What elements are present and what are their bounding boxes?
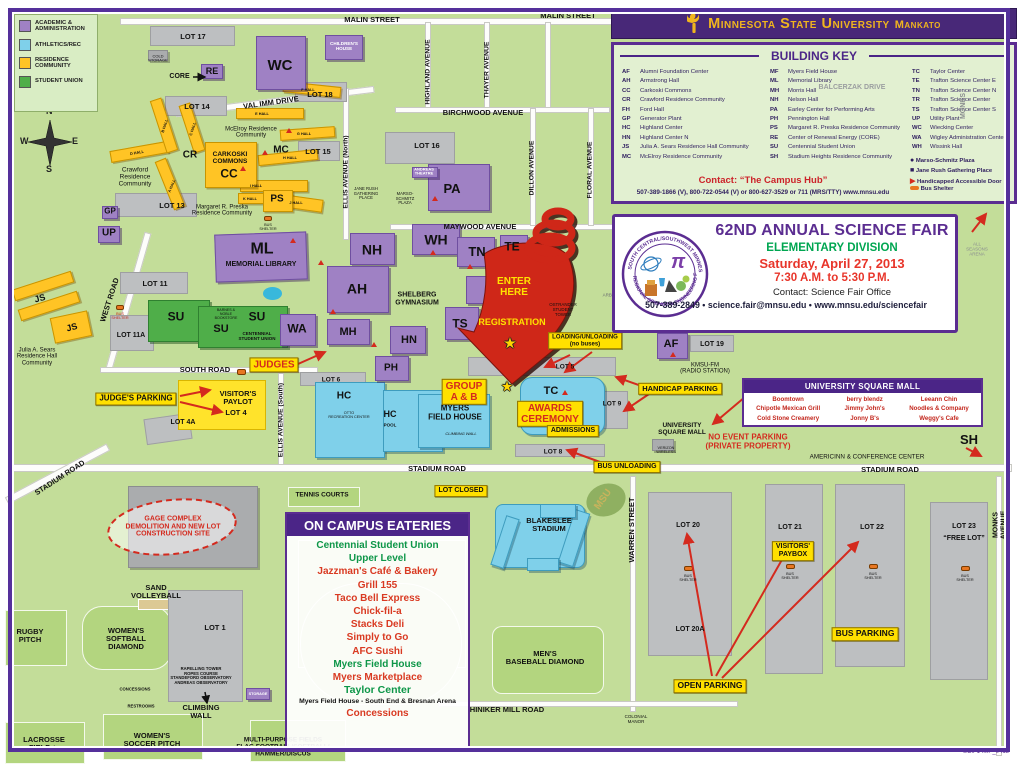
- building-key-entry: HCHighland Center: [622, 125, 683, 131]
- bus-parking-callout: BUS PARKING: [832, 627, 899, 641]
- area-label: BUS SHELTER: [864, 572, 881, 580]
- bus-shelter-icon: [869, 564, 878, 569]
- open-parking-callout: OPEN PARKING: [673, 679, 746, 693]
- building-key-entry: TETrafton Science Center E: [912, 78, 996, 84]
- building-key-entry: GPGenerator Plant: [622, 116, 682, 122]
- building-label: MC: [273, 146, 289, 157]
- judges-callout: JUDGES: [249, 357, 298, 372]
- eatery-item: Myers Field House - South End & Bresnan …: [287, 698, 468, 707]
- eatery-item: AFC Sushi: [287, 645, 468, 658]
- building-key-entry: NHNelson Hall: [770, 97, 818, 103]
- building-label: I HALL: [250, 184, 262, 188]
- building-label: SU: [168, 311, 185, 324]
- enter-here-label: ENTER HERE: [494, 275, 534, 299]
- eatery-item: Centennial Student Union: [287, 539, 468, 552]
- building-label: AF: [664, 339, 679, 351]
- area-label: SAND VOLLEYBALL: [131, 584, 181, 600]
- building-key-entry: TRTrafton Science Center: [912, 97, 990, 103]
- area-label: STORAGE: [249, 692, 268, 696]
- building-label: F HALL: [301, 88, 315, 92]
- bus-shelter-icon: [237, 369, 246, 375]
- building-label: ANDREAS THEATRE: [414, 168, 434, 177]
- building-label: MYERS FIELD HOUSE: [428, 404, 482, 421]
- area-label: MEN'S BASEBALL DIAMOND: [506, 650, 585, 666]
- building-label: Crawford Residence Community: [119, 166, 152, 187]
- area-label: BUS SHELTER: [781, 572, 798, 580]
- legend-label: ATHLETICS/REC: [35, 42, 81, 48]
- street-label: WARREN STREET: [628, 497, 636, 562]
- compass-s: S: [46, 164, 52, 174]
- bus-shelter-icon: [264, 216, 272, 221]
- building-label: SU: [249, 311, 266, 324]
- street-label: DILLON AVENUE: [528, 141, 535, 196]
- accessible-door-icon: [290, 238, 296, 243]
- building-label: OTTO RECREATION CENTER: [328, 411, 369, 419]
- building-key-entry: JSJulia A. Sears Residence Hall Communit…: [622, 144, 749, 150]
- street-label: STADIUM ROAD: [861, 466, 919, 474]
- eatery-item: Stacks Deli: [287, 618, 468, 631]
- registration-star: ★: [501, 336, 519, 353]
- lot-label: LOT 1: [204, 624, 225, 632]
- building-label: J HALL: [289, 201, 302, 205]
- judges-parking-callout: JUDGE'S PARKING: [95, 393, 176, 406]
- legend-label: ACADEMIC & ADMINISTRATION: [35, 20, 85, 33]
- mall-restaurant: Jonny B's: [844, 414, 884, 423]
- building-label: CORE →: [169, 73, 198, 81]
- accessible-door-icon: [330, 309, 336, 314]
- lot-label: LOT 15: [305, 148, 330, 156]
- building-label: WH: [424, 232, 447, 247]
- street-label: ELLIS AVENUE (North): [342, 135, 349, 208]
- university-name: Minnesota State University: [708, 16, 890, 32]
- building-label: ML: [250, 240, 273, 257]
- lot-label: “FREE LOT”: [943, 535, 985, 543]
- mall-column: berry blendzJimmy John'sJonny B's: [844, 395, 884, 423]
- area-label: LOT 4: [225, 409, 246, 417]
- building-key: BUILDING KEY Contact: “The Campus Hub” 5…: [611, 42, 1017, 204]
- building-label: CLIMBING WALL: [445, 432, 476, 436]
- building-label: CARKOSKI COMMONS: [213, 151, 248, 165]
- building-label: McElroy Residence Community: [225, 127, 277, 140]
- building-key-entry: HNHighland Center N: [622, 135, 688, 141]
- athletics-building: [527, 558, 559, 571]
- building-label: NH: [362, 242, 382, 257]
- street-label: AMERICINN & CONFERENCE CENTER: [810, 455, 925, 462]
- street-label: ELLIS AVENUE (South): [277, 383, 284, 457]
- eatery-item: Concessions: [287, 707, 468, 720]
- key-symbol-red-arrow: ▶ Handicapped Accessible Door: [910, 177, 1002, 185]
- legend-item: ACADEMIC & ADMINISTRATION: [19, 20, 93, 33]
- street-label: STADIUM ROAD: [408, 465, 466, 473]
- area-label: WOMEN'S SOFTBALL DIAMOND: [106, 627, 146, 651]
- eatery-item: Jazzman's Café & Bakery: [287, 565, 468, 578]
- registration-label: REGISTRATION: [475, 316, 548, 328]
- street-label: MAYWOOD AVENUE: [444, 223, 517, 231]
- accessible-door-icon: [562, 390, 568, 395]
- lot-label: LOT 20: [676, 522, 700, 530]
- visitors-paybox-callout: VISITORS' PAYBOX: [772, 541, 814, 561]
- accessible-door-icon: [371, 342, 377, 347]
- area-label: NO EVENT PARKING (PRIVATE PROPERTY): [705, 433, 790, 450]
- lot-label: LOT 6: [322, 376, 340, 383]
- legend-item: ATHLETICS/REC: [19, 39, 93, 51]
- compass-w: W: [20, 136, 29, 146]
- accessible-door-icon: [467, 264, 473, 269]
- accessible-door-icon: [240, 166, 246, 171]
- building-key-entry: AFAlumni Foundation Center: [622, 69, 708, 75]
- building-label: TS: [452, 318, 467, 331]
- building-key-entry: CCCarkoski Commons: [622, 88, 691, 94]
- building-label: MARSO- SCHMITZ PLAZA: [396, 192, 415, 206]
- building-key-entry: MCMcElroy Residence Community: [622, 154, 722, 160]
- area-label: CONCESSIONS: [120, 688, 151, 693]
- lot-label: LOT 11A: [117, 332, 145, 340]
- building-label: PA: [443, 182, 460, 196]
- awards-ceremony-callout: AWARDS CEREMONY: [517, 401, 583, 427]
- building-label: BARNES & NOBLE BOOKSTORE: [215, 309, 238, 321]
- science-fair-division: ELEMENTARY DIVISION: [713, 242, 951, 254]
- mall-restaurant: Cold Stone Creamery: [756, 414, 820, 423]
- science-fair-logo: SOUTH CENTRAL/SOUTHWEST MINNESOTA REGION…: [619, 222, 711, 327]
- street-label: HIGHLAND AVENUE: [424, 39, 431, 104]
- lot-label: LOT 19: [700, 341, 724, 349]
- area-label: BUS SHELTER: [956, 574, 973, 582]
- building-label: SU: [213, 324, 228, 336]
- accessible-door-icon: [430, 250, 436, 255]
- area-label: CLIMBING WALL: [182, 704, 219, 720]
- building-label: GP: [104, 208, 116, 217]
- bus-unloading-callout: BUS UNLOADING: [593, 461, 660, 473]
- legend-swatch: [19, 76, 31, 88]
- bus-shelter-icon: [116, 305, 124, 310]
- lot-label: LOT 13: [159, 202, 184, 210]
- lot-label: LOT 5: [556, 363, 574, 370]
- building-label: WC: [268, 58, 293, 74]
- street-label: MALIN STREET: [344, 16, 399, 24]
- area-label: BUS SHELTER: [259, 223, 276, 231]
- mall-column: Leeann ChinNoodles & CompanyWeggy's Cafe: [909, 395, 969, 423]
- building-label: CHILDREN'S HOUSE: [330, 42, 358, 52]
- building-label: TC: [544, 386, 559, 398]
- area-label: COLONIAL MANOR: [625, 715, 648, 725]
- street-label: FLORAL AVENUE: [586, 142, 593, 199]
- legend-swatch: [19, 39, 31, 51]
- area-label: SCIF14MP_0413: [963, 749, 1009, 755]
- building-label: E HALL: [255, 112, 269, 116]
- science-fair-date: Saturday, April 27, 2013: [713, 256, 951, 271]
- eatery-item: Myers Field House: [287, 658, 468, 671]
- accessible-door-icon: [432, 196, 438, 201]
- accessible-door-icon: [286, 128, 292, 133]
- area-label: RESTROOMS: [128, 705, 155, 710]
- building-key-entry: MFMyers Field House: [770, 69, 837, 75]
- lot-closed-callout: LOT CLOSED: [434, 485, 487, 497]
- lot-label: LOT 11: [142, 280, 167, 288]
- building-label: SHELBERG GYMNASIUM: [395, 291, 439, 306]
- eatery-item: Grill 155: [287, 579, 468, 592]
- area-label: UNIVERSITY SQUARE MALL: [658, 422, 706, 436]
- building-label: G HALL: [297, 132, 311, 136]
- building-label: WA: [287, 323, 306, 336]
- building-label: POOL: [384, 424, 397, 429]
- area-label: SH: [960, 433, 978, 447]
- area-label: TENNIS COURTS: [295, 491, 348, 498]
- area-label: ALL SEASONS ARENA: [966, 243, 988, 258]
- building-key-entry: MHMorris Hall: [770, 88, 816, 94]
- compass-e: E: [72, 136, 78, 146]
- handicap-parking-callout: HANDICAP PARKING: [638, 383, 722, 395]
- group-a-b-callout: GROUP A & B: [442, 379, 487, 405]
- legend-item: RESIDENCE COMMUNITY: [19, 57, 93, 70]
- lot-label: LOT 18: [307, 91, 332, 99]
- building-label: TN: [468, 245, 485, 259]
- eatery-item: Upper Level: [287, 552, 468, 565]
- building-label: K HALL: [243, 197, 257, 201]
- loading-unloading-callout: LOADING/UNLOADING (no buses): [548, 332, 622, 349]
- area-label: GAGE COMPLEX DEMOLITION AND NEW LOT CONS…: [125, 516, 220, 539]
- building-key-entry: PAEarley Center for Performing Arts: [770, 107, 875, 113]
- building-label: UP: [102, 229, 116, 240]
- mall-restaurant: Noodles & Company: [909, 404, 969, 413]
- sand-court: [138, 599, 172, 610]
- bus-shelter-icon: [786, 564, 795, 569]
- svg-text:π: π: [671, 251, 686, 273]
- key-symbol-square: ■ Jane Rush Gathering Place: [910, 167, 992, 174]
- map-legend: ACADEMIC & ADMINISTRATIONATHLETICS/RECRE…: [14, 14, 98, 112]
- building-key-entry: WAWigley Administration Center: [912, 135, 1006, 141]
- building-key-entry: TCTaylor Center: [912, 69, 965, 75]
- building-label: HN: [401, 335, 417, 347]
- compass-rose: N W E S: [20, 106, 84, 182]
- building-key-entry: CRCrawford Residence Community: [622, 97, 725, 103]
- building-key-entry: UPUtility Plant: [912, 116, 959, 122]
- campus-name: Mankato: [895, 19, 941, 31]
- lot-label: LOT 16: [414, 142, 439, 150]
- mall-restaurant: Weggy's Cafe: [909, 414, 969, 423]
- science-fair-title: 62ND ANNUAL SCIENCE FAIR: [713, 222, 951, 240]
- lot-label: LOT 8: [544, 448, 562, 455]
- area-label: BUS SHELTER: [111, 312, 128, 320]
- university-square-mall-panel: UNIVERSITY SQUARE MALL BoomtownChipotle …: [742, 378, 983, 427]
- building-label: AH: [347, 281, 367, 296]
- building-label: PS: [270, 195, 283, 206]
- building-label: RE: [206, 67, 219, 77]
- building-label: H HALL: [283, 156, 297, 160]
- parking-lot: [168, 590, 243, 702]
- mall-restaurant: berry blendz: [844, 395, 884, 404]
- street-label: BIRCHWOOD AVENUE: [443, 109, 523, 117]
- street-label: MALIN STREET: [540, 12, 595, 20]
- accessible-door-icon: [502, 261, 508, 266]
- legend-label: STUDENT UNION: [35, 78, 83, 84]
- lot-label: LOT 22: [860, 524, 884, 532]
- science-fair-time: 7:30 A.M. to 5:30 P.M.: [713, 272, 951, 284]
- street-label: THAYER AVENUE: [483, 42, 490, 99]
- building-label: MEMORIAL LIBRARY: [226, 261, 297, 269]
- building-label: HC: [384, 410, 397, 420]
- street-label: HINIKER MILL ROAD: [470, 706, 544, 714]
- eatery-item: Myers Marketplace: [287, 671, 468, 684]
- building-label: HC: [337, 392, 351, 403]
- area-label: WOMEN'S SOCCER PITCH: [124, 732, 181, 748]
- bus-shelter-icon: [684, 566, 693, 571]
- street-label: SOUTH ROAD: [180, 366, 230, 374]
- mall-restaurant: Boomtown: [756, 395, 820, 404]
- area-label: BLAKESLEE STADIUM: [526, 517, 571, 533]
- building-key-entry: PHPennington Hall: [770, 116, 830, 122]
- lot-label: LOT 17: [180, 33, 205, 41]
- building-label: CR: [183, 151, 197, 162]
- legend-item: STUDENT UNION: [19, 76, 93, 88]
- building-label: JANE RUSH GATHERING PLACE: [354, 187, 379, 201]
- building-key-entry: PSMargaret R. Preska Residence Community: [770, 125, 900, 131]
- mall-restaurant: Chipotle Mexican Grill: [756, 404, 820, 413]
- building-key-entry: TSTrafton Science Center S: [912, 107, 996, 113]
- building-label: COLD STORAGE: [148, 55, 168, 64]
- area-label: VISITOR'S PAYLOT: [220, 390, 257, 406]
- campus-map-page: MALIN STREETMALIN STREETHIGHLAND AVENUET…: [0, 0, 1024, 778]
- accessible-door-icon: [670, 352, 676, 357]
- building-label: Margaret R. Preska Residence Community: [192, 205, 252, 218]
- street-label: MONKS: [960, 93, 968, 119]
- eateries-panel-title: ON CAMPUS EATERIES: [287, 514, 468, 536]
- pond: [263, 287, 282, 300]
- building-key-entry: TNTrafton Science Center N: [912, 88, 996, 94]
- bus-shelter-icon: [961, 566, 970, 571]
- entrance-star: ★: [499, 379, 516, 394]
- building-key-entry: SHStadium Heights Residence Community: [770, 154, 892, 160]
- science-fair-panel: SOUTH CENTRAL/SOUTHWEST MINNESOTA REGION…: [612, 214, 958, 333]
- building-label: TE: [504, 241, 519, 254]
- key-symbol-bus: Bus Shelter: [910, 186, 953, 192]
- legend-label: RESIDENCE COMMUNITY: [35, 57, 71, 70]
- university-title: Minnesota State UniversityMankato: [708, 16, 941, 32]
- building-key-entry: FHFord Hall: [622, 107, 664, 113]
- eatery-item: Taylor Center: [287, 684, 468, 698]
- lot-label: LOT 9: [603, 400, 621, 407]
- street-label: MONKS AVENUE: [992, 511, 1007, 540]
- building-label: Julia A. Sears Residence Hall Community: [17, 347, 57, 366]
- mall-panel-title: UNIVERSITY SQUARE MALL: [744, 380, 981, 393]
- science-fair-contact: Contact: Science Fair Office: [713, 287, 951, 298]
- building-label: KMSU-FM (RADIO STATION): [680, 363, 730, 376]
- area-label: RUGBY PITCH: [16, 628, 43, 644]
- building-label: OSTRANDER STUDENT TOWER: [549, 303, 577, 317]
- lot-label: LOT 20A: [676, 626, 705, 634]
- lot-label: LOT 4A: [171, 419, 196, 427]
- building-key-entry: SUCentennial Student Union: [770, 144, 855, 150]
- area-label: RAPELLING TOWER ROPES COURSE STANDEFORD …: [170, 667, 231, 685]
- area-label: LACROSSE FIELD ↘: [23, 736, 65, 752]
- academic-building: [466, 276, 496, 304]
- on-campus-eateries-panel: ON CAMPUS EATERIES Centennial Student Un…: [285, 512, 470, 748]
- lot-label: LOT 21: [778, 524, 802, 532]
- building-label: CC: [220, 168, 237, 181]
- building-key-entry: WCWiecking Center: [912, 125, 973, 131]
- eatery-item: Simply to Go: [287, 631, 468, 644]
- building-label: VERIZON WIRELESS: [656, 446, 676, 454]
- science-fair-info: 507-389-2849 • science.fair@mnsu.edu • w…: [621, 300, 951, 310]
- mall-restaurant: Leeann Chin: [909, 395, 969, 404]
- accessible-door-icon: [318, 260, 324, 265]
- torch-logo-icon: [687, 12, 701, 36]
- campus-hub-contact: Contact: “The Campus Hub”: [620, 175, 906, 186]
- building-key-entry: AHArmstrong Hall: [622, 78, 679, 84]
- lot-label: LOT 14: [184, 103, 209, 111]
- legend-swatch: [19, 20, 31, 32]
- building-label: MH: [339, 327, 356, 339]
- university-header: Minnesota State UniversityMankato: [611, 8, 1017, 39]
- building-label: CENTENNIAL STUDENT UNION: [239, 332, 276, 342]
- campus-hub-phone: 507-389-1866 (V), 800-722-0544 (V) or 80…: [620, 189, 906, 196]
- legend-swatch: [19, 57, 31, 69]
- lot-label: LOT 23: [952, 523, 976, 531]
- building-key-title: BUILDING KEY: [614, 49, 1014, 63]
- eatery-item: Chick-fil-a: [287, 605, 468, 618]
- street-label: BALCERZAK DRIVE: [819, 84, 886, 92]
- key-symbol-dot: ● Marso-Schmitz Plaza: [910, 157, 974, 164]
- parking-lot: [468, 357, 616, 376]
- area-label: BUS SHELTER: [679, 574, 696, 582]
- building-key-entry: WHWissink Hall: [912, 144, 962, 150]
- road: [545, 22, 551, 112]
- building-label: PH: [384, 364, 398, 375]
- accessible-door-icon: [262, 150, 268, 155]
- mall-restaurant: Jimmy John's: [844, 404, 884, 413]
- mall-column: BoomtownChipotle Mexican GrillCold Stone…: [756, 395, 820, 423]
- admissions-callout: ADMISSIONS: [547, 425, 599, 437]
- eatery-item: Taco Bell Express: [287, 592, 468, 605]
- building-key-entry: RECenter of Renewal Energy (CORE): [770, 135, 880, 141]
